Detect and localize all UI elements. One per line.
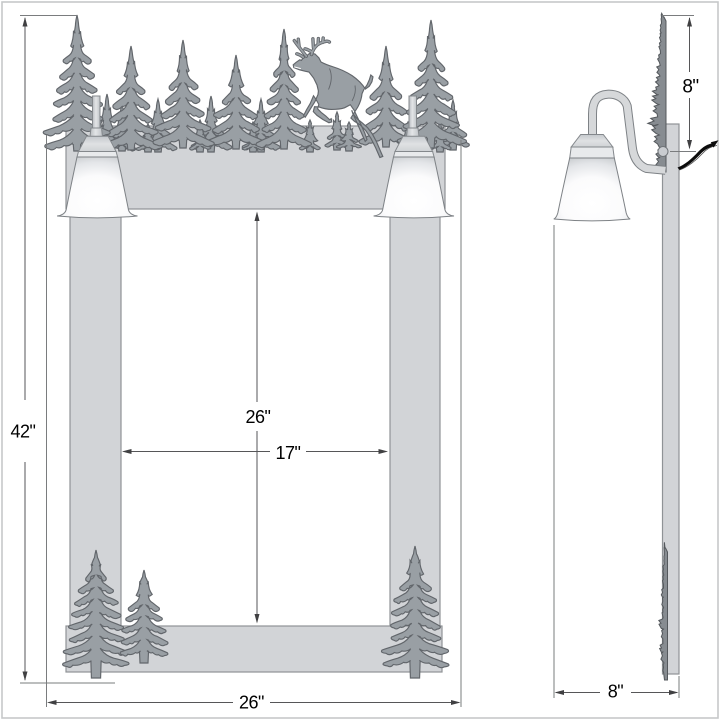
svg-text:26": 26" [239,693,264,713]
svg-text:8": 8" [682,77,698,98]
svg-text:17": 17" [276,443,301,463]
svg-text:8": 8" [608,682,624,702]
svg-text:26": 26" [246,407,271,427]
svg-text:42": 42" [11,422,36,442]
